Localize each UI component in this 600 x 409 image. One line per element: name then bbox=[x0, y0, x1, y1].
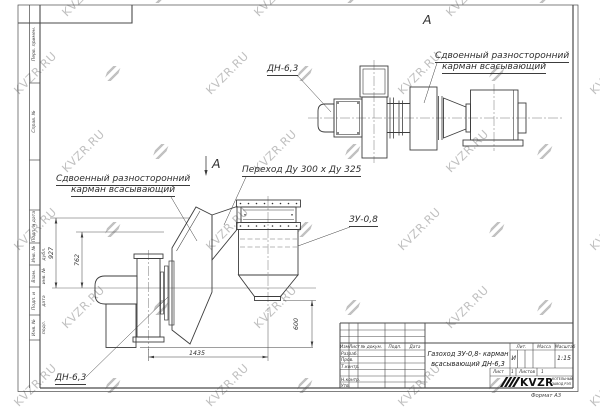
ash-collector-side bbox=[237, 200, 301, 301]
fan-casing-top bbox=[362, 97, 387, 158]
transition-side bbox=[212, 207, 237, 261]
suction-pocket-side bbox=[172, 207, 212, 344]
drawing-canvas bbox=[0, 0, 600, 400]
kvzr-logo-icon bbox=[500, 377, 520, 387]
top-view bbox=[308, 60, 562, 163]
title-block-grid bbox=[340, 323, 573, 388]
suction-pocket-top bbox=[410, 87, 437, 150]
sheet-frame bbox=[18, 5, 578, 392]
base-plate-top bbox=[463, 140, 523, 146]
drive-unit-top bbox=[471, 90, 519, 140]
fan-pedestal-side bbox=[106, 304, 136, 348]
fan-motor-side bbox=[95, 276, 137, 304]
